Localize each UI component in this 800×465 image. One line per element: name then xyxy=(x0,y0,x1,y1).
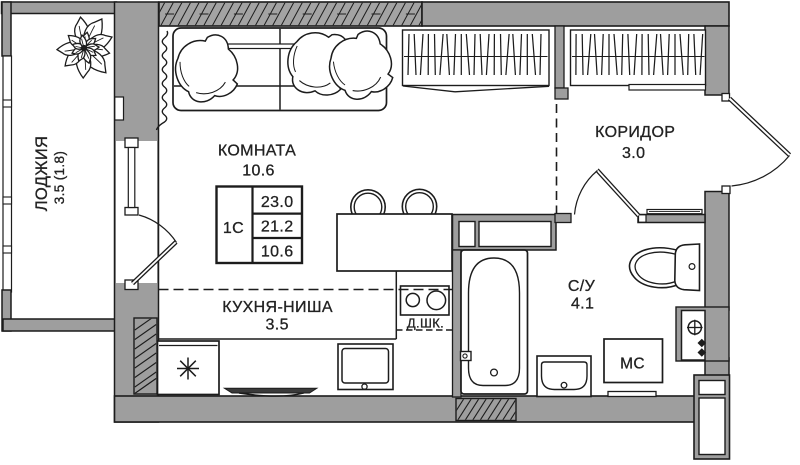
svg-text:21.2: 21.2 xyxy=(261,219,294,236)
svg-text:КУХНЯ-НИША: КУХНЯ-НИША xyxy=(222,299,333,316)
svg-text:ЛОДЖИЯ: ЛОДЖИЯ xyxy=(33,136,51,212)
svg-text:23.0: 23.0 xyxy=(261,194,294,211)
svg-text:3.5 (1.8): 3.5 (1.8) xyxy=(52,151,67,204)
svg-text:МС: МС xyxy=(620,356,645,373)
svg-text:4.1: 4.1 xyxy=(571,296,594,313)
svg-text:КОМНАТА: КОМНАТА xyxy=(218,142,296,159)
svg-text:1С: 1С xyxy=(223,220,244,237)
svg-text:3.0: 3.0 xyxy=(622,145,645,162)
svg-text:3.5: 3.5 xyxy=(266,317,289,334)
svg-text:10.6: 10.6 xyxy=(242,162,275,179)
svg-text:КОРИДОР: КОРИДОР xyxy=(595,124,675,141)
svg-text:Д.ШК.: Д.ШК. xyxy=(407,316,444,331)
svg-text:С/У: С/У xyxy=(568,278,596,295)
svg-text:10.6: 10.6 xyxy=(261,243,294,260)
